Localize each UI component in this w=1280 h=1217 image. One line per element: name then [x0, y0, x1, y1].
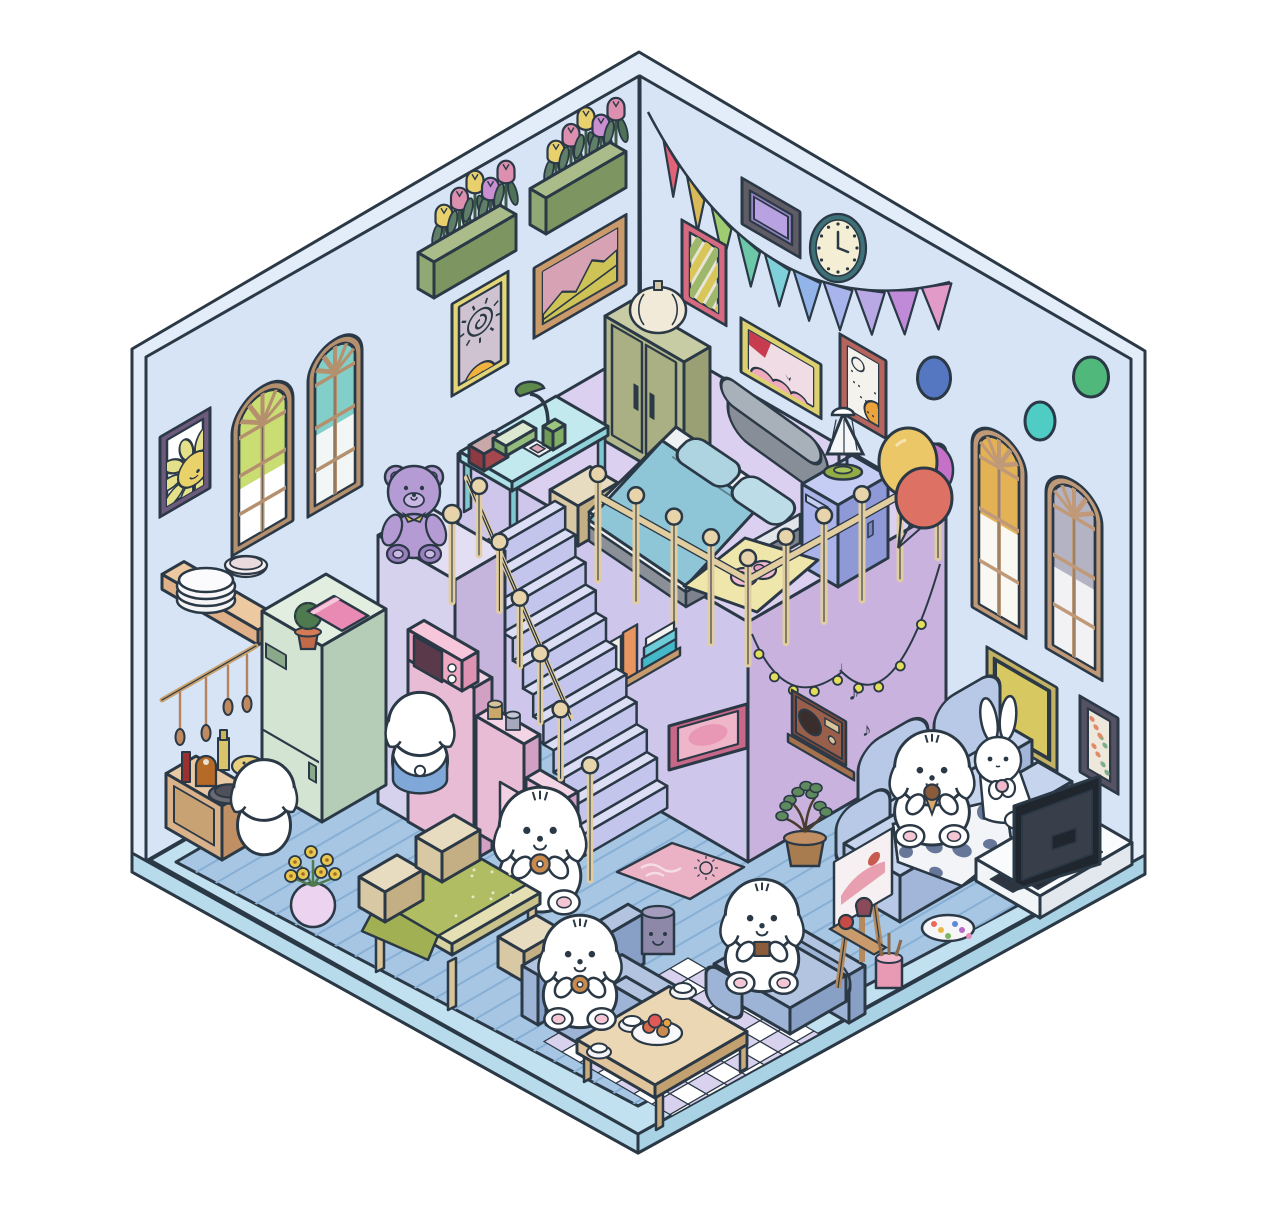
svg-text:♪: ♪: [862, 720, 872, 741]
svg-text:♪: ♪: [848, 679, 860, 706]
svg-text:♩: ♩: [838, 659, 853, 676]
